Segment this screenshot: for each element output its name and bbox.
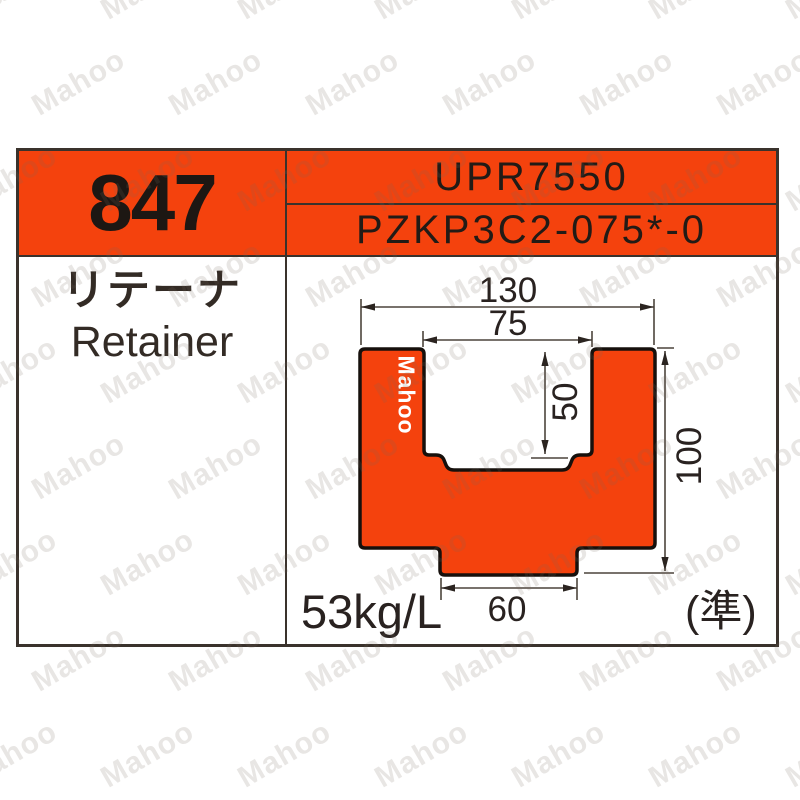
product-name-cell: リテーナ Retainer bbox=[19, 257, 287, 644]
watermark-text: Mahoo bbox=[506, 0, 611, 27]
dim-label-50: 50 bbox=[546, 383, 585, 422]
model-number: UPR7550 bbox=[434, 157, 628, 197]
watermark-text: Mahoo bbox=[95, 0, 200, 27]
part-code: PZKP3C2-075*-0 bbox=[356, 210, 707, 250]
watermark-text: Mahoo bbox=[506, 715, 611, 795]
watermark-text: Mahoo bbox=[780, 0, 800, 27]
model-cell: UPR7550 bbox=[287, 151, 776, 205]
watermark-text: Mahoo bbox=[95, 715, 200, 795]
watermark-text: Mahoo bbox=[232, 715, 337, 795]
watermark-text: Mahoo bbox=[643, 0, 748, 27]
watermark-text: Mahoo bbox=[711, 43, 800, 123]
standard-note: (準) bbox=[685, 589, 757, 635]
watermark-on-part: Mahoo bbox=[393, 355, 420, 434]
watermark-text: Mahoo bbox=[780, 331, 800, 411]
watermark-text: Mahoo bbox=[0, 715, 63, 795]
product-name-ja: リテーナ bbox=[19, 265, 285, 317]
watermark-text: Mahoo bbox=[26, 43, 131, 123]
watermark-text: Mahoo bbox=[300, 43, 405, 123]
watermark-text: Mahoo bbox=[163, 43, 268, 123]
watermark-text: Mahoo bbox=[643, 715, 748, 795]
watermark-text: Mahoo bbox=[437, 43, 542, 123]
dim-label-100: 100 bbox=[670, 427, 709, 485]
part-code-cell: PZKP3C2-075*-0 bbox=[287, 205, 776, 257]
product-name-en: Retainer bbox=[19, 317, 285, 367]
watermark-text: Mahoo bbox=[780, 523, 800, 603]
watermark-text: Mahoo bbox=[369, 0, 474, 27]
catalog-page: 847 UPR7550 PZKP3C2-075*-0 リテーナ Retainer… bbox=[0, 0, 800, 800]
watermark-text: Mahoo bbox=[574, 43, 679, 123]
watermark-text: Mahoo bbox=[780, 139, 800, 219]
watermark-text: Mahoo bbox=[780, 715, 800, 795]
item-number-cell: 847 bbox=[19, 151, 287, 257]
weight-per-length: 53kg/L bbox=[301, 590, 442, 634]
dim-label-75: 75 bbox=[489, 304, 528, 343]
watermark-text: Mahoo bbox=[0, 0, 63, 27]
dim-label-60: 60 bbox=[488, 590, 527, 629]
watermark-text: Mahoo bbox=[232, 0, 337, 27]
item-number: 847 bbox=[88, 163, 215, 243]
watermark-text: Mahoo bbox=[369, 715, 474, 795]
